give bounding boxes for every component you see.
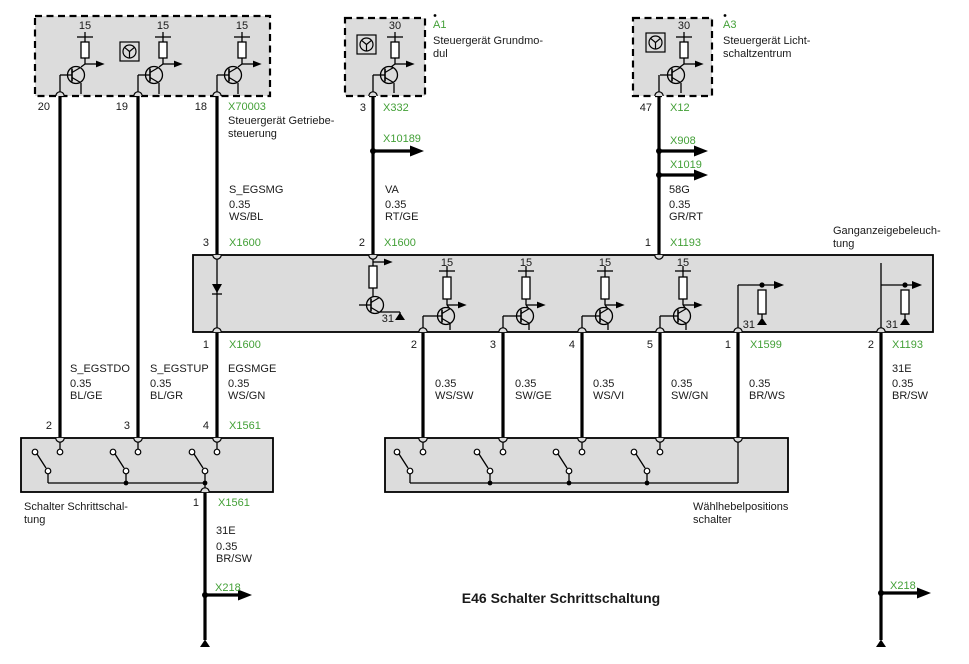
wire-size-label: 0.35 bbox=[70, 378, 91, 390]
wire-signal-label: 31E bbox=[892, 363, 912, 375]
connector-link-x1193[interactable]: X1193 bbox=[892, 339, 923, 351]
resistor-icon bbox=[758, 290, 766, 314]
pin-number: 3 bbox=[490, 339, 496, 351]
wiring-diagram-canvas: 15 15 15 20 19 18 X70003 Steuergerät Get… bbox=[0, 0, 969, 664]
reference-dot-marker bbox=[724, 14, 727, 17]
wire-color-label: WS/GN bbox=[228, 390, 265, 402]
connector-link-x1561[interactable]: X1561 bbox=[218, 497, 250, 509]
pin-number: 1 bbox=[725, 339, 731, 351]
module-name: tung bbox=[833, 238, 854, 250]
pin-number: 1 bbox=[203, 339, 209, 351]
wire-signal-label: 58G bbox=[669, 184, 690, 196]
resistor-icon bbox=[391, 42, 399, 58]
wire-signal-label: VA bbox=[385, 184, 400, 196]
pin-number: 2 bbox=[46, 420, 52, 432]
terminal-label: 15 bbox=[520, 257, 532, 269]
waehlhebelpositionsschalter-box bbox=[385, 438, 788, 492]
connector-link-x218[interactable]: X218 bbox=[215, 582, 241, 594]
wire-size-label: 0.35 bbox=[229, 199, 250, 211]
pin-number: 1 bbox=[645, 237, 651, 249]
connector-link-x1600[interactable]: X1600 bbox=[229, 237, 261, 249]
wire-color-label: WS/BL bbox=[229, 211, 263, 223]
wire-color-label: GR/RT bbox=[669, 211, 703, 223]
connector-link-x1019[interactable]: X1019 bbox=[670, 159, 702, 171]
resistor-icon bbox=[901, 290, 909, 314]
pin-number: 4 bbox=[203, 420, 209, 432]
wire-color-label: BL/GR bbox=[150, 390, 183, 402]
branch-x1019 bbox=[656, 170, 708, 181]
terminal-label: 15 bbox=[236, 20, 248, 32]
pin-number: 3 bbox=[203, 237, 209, 249]
pin-number: 2 bbox=[868, 339, 874, 351]
module-name: Schalter Schrittschal- bbox=[24, 501, 128, 513]
module-name: Ganganzeigebeleuch- bbox=[833, 225, 941, 237]
connector-link-x70003[interactable]: X70003 bbox=[228, 101, 266, 113]
pin-number: 1 bbox=[193, 497, 199, 509]
pin-number: 19 bbox=[116, 101, 128, 113]
terminal-label: 15 bbox=[157, 20, 169, 32]
wire-size-label: 0.35 bbox=[435, 378, 456, 390]
connector-link-x218[interactable]: X218 bbox=[890, 580, 916, 592]
wiring-diagram-page: 15 15 15 20 19 18 X70003 Steuergerät Get… bbox=[0, 0, 969, 664]
wire-signal-label: S_EGSTUP bbox=[150, 363, 209, 375]
pin-number: 47 bbox=[640, 102, 652, 114]
terminal-label: 15 bbox=[79, 20, 91, 32]
reference-dot-marker bbox=[434, 14, 437, 17]
wire-color-label: BR/SW bbox=[892, 390, 929, 402]
module-name: steuerung bbox=[228, 128, 277, 140]
wire-size-label: 0.35 bbox=[749, 378, 770, 390]
connector-link-x332[interactable]: X332 bbox=[383, 102, 409, 114]
wire-color-label: RT/GE bbox=[385, 211, 418, 223]
wire-color-label: SW/GN bbox=[671, 390, 708, 402]
branch-x908 bbox=[656, 146, 708, 157]
resistor-icon bbox=[680, 42, 688, 58]
wire-color-label: BR/SW bbox=[216, 553, 253, 565]
resistor-icon bbox=[522, 277, 530, 299]
diagram-title: E46 Schalter Schrittschaltung bbox=[462, 590, 660, 606]
wire-size-label: 0.35 bbox=[228, 378, 249, 390]
resistor-icon bbox=[601, 277, 609, 299]
terminal-label: 15 bbox=[677, 257, 689, 269]
wire-size-label: 0.35 bbox=[671, 378, 692, 390]
module-name: Steuergerät Getriebe- bbox=[228, 115, 335, 127]
resistor-icon bbox=[443, 277, 451, 299]
resistor-icon bbox=[369, 266, 377, 288]
connector-link-x1600[interactable]: X1600 bbox=[384, 237, 416, 249]
wire-size-label: 0.35 bbox=[669, 199, 690, 211]
branch-x10189 bbox=[370, 146, 424, 157]
component-id-a3[interactable]: A3 bbox=[723, 19, 736, 31]
wire-signal-label: S_EGSMG bbox=[229, 184, 283, 196]
pin-number: 2 bbox=[411, 339, 417, 351]
connector-link-x1561[interactable]: X1561 bbox=[229, 420, 261, 432]
terminal-label: 30 bbox=[678, 20, 690, 32]
grundmodul-box bbox=[345, 18, 425, 96]
module-name: Wählhebelpositions bbox=[693, 501, 789, 513]
connector-link-x1600[interactable]: X1600 bbox=[229, 339, 261, 351]
resistor-icon bbox=[238, 42, 246, 58]
pin-number: 4 bbox=[569, 339, 575, 351]
module-name: schalter bbox=[693, 514, 732, 526]
ground-icon bbox=[876, 640, 886, 648]
ground-terminal-label: 31 bbox=[382, 313, 394, 325]
schalter-schrittschaltung-box bbox=[21, 438, 273, 492]
wire-color-label: WS/VI bbox=[593, 390, 624, 402]
wire-size-label: 0.35 bbox=[892, 378, 913, 390]
wire-signal-label: S_EGSTDO bbox=[70, 363, 130, 375]
module-name: schaltzentrum bbox=[723, 48, 791, 60]
pin-number: 20 bbox=[38, 101, 50, 113]
wire-size-label: 0.35 bbox=[515, 378, 536, 390]
connector-link-x908[interactable]: X908 bbox=[670, 135, 696, 147]
pin-number: 3 bbox=[360, 102, 366, 114]
terminal-label: 30 bbox=[389, 20, 401, 32]
wire-signal-label: EGSMGE bbox=[228, 363, 276, 375]
ground-terminal-label: 31 bbox=[743, 319, 755, 331]
ground-terminal-label: 31 bbox=[886, 319, 898, 331]
module-name: tung bbox=[24, 514, 45, 526]
terminal-label: 15 bbox=[441, 257, 453, 269]
module-name: Steuergerät Grundmo- bbox=[433, 35, 543, 47]
connector-link-x12[interactable]: X12 bbox=[670, 102, 690, 114]
connector-link-x10189[interactable]: X10189 bbox=[383, 133, 421, 145]
resistor-icon bbox=[159, 42, 167, 58]
pin-number: 3 bbox=[124, 420, 130, 432]
wire-color-label: BR/WS bbox=[749, 390, 785, 402]
pin-number: 2 bbox=[359, 237, 365, 249]
pin-number: 5 bbox=[647, 339, 653, 351]
branch-arrow-icon bbox=[694, 146, 708, 157]
branch-arrow-icon bbox=[410, 146, 424, 157]
ground-icon bbox=[200, 640, 210, 648]
resistor-icon bbox=[81, 42, 89, 58]
connector-link-x1193[interactable]: X1193 bbox=[670, 237, 701, 249]
module-name: Steuergerät Licht- bbox=[723, 35, 811, 47]
resistor-icon bbox=[679, 277, 687, 299]
terminal-label: 15 bbox=[599, 257, 611, 269]
connector-link-x1599[interactable]: X1599 bbox=[750, 339, 782, 351]
pin-number: 18 bbox=[195, 101, 207, 113]
branch-arrow-icon bbox=[694, 170, 708, 181]
wire-size-label: 0.35 bbox=[385, 199, 406, 211]
component-id-a1[interactable]: A1 bbox=[433, 19, 446, 31]
wire-signal-label: 31E bbox=[216, 525, 236, 537]
lichtschaltzentrum-box bbox=[633, 18, 712, 96]
wire-size-label: 0.35 bbox=[216, 541, 237, 553]
module-name: dul bbox=[433, 48, 448, 60]
branch-arrow-icon bbox=[917, 588, 931, 599]
wire-color-label: SW/GE bbox=[515, 390, 552, 402]
ganganzeigebeleuchtung-box bbox=[193, 255, 933, 332]
wire-color-label: BL/GE bbox=[70, 390, 102, 402]
wire-color-label: WS/SW bbox=[435, 390, 474, 402]
wire-size-label: 0.35 bbox=[593, 378, 614, 390]
wire-size-label: 0.35 bbox=[150, 378, 171, 390]
